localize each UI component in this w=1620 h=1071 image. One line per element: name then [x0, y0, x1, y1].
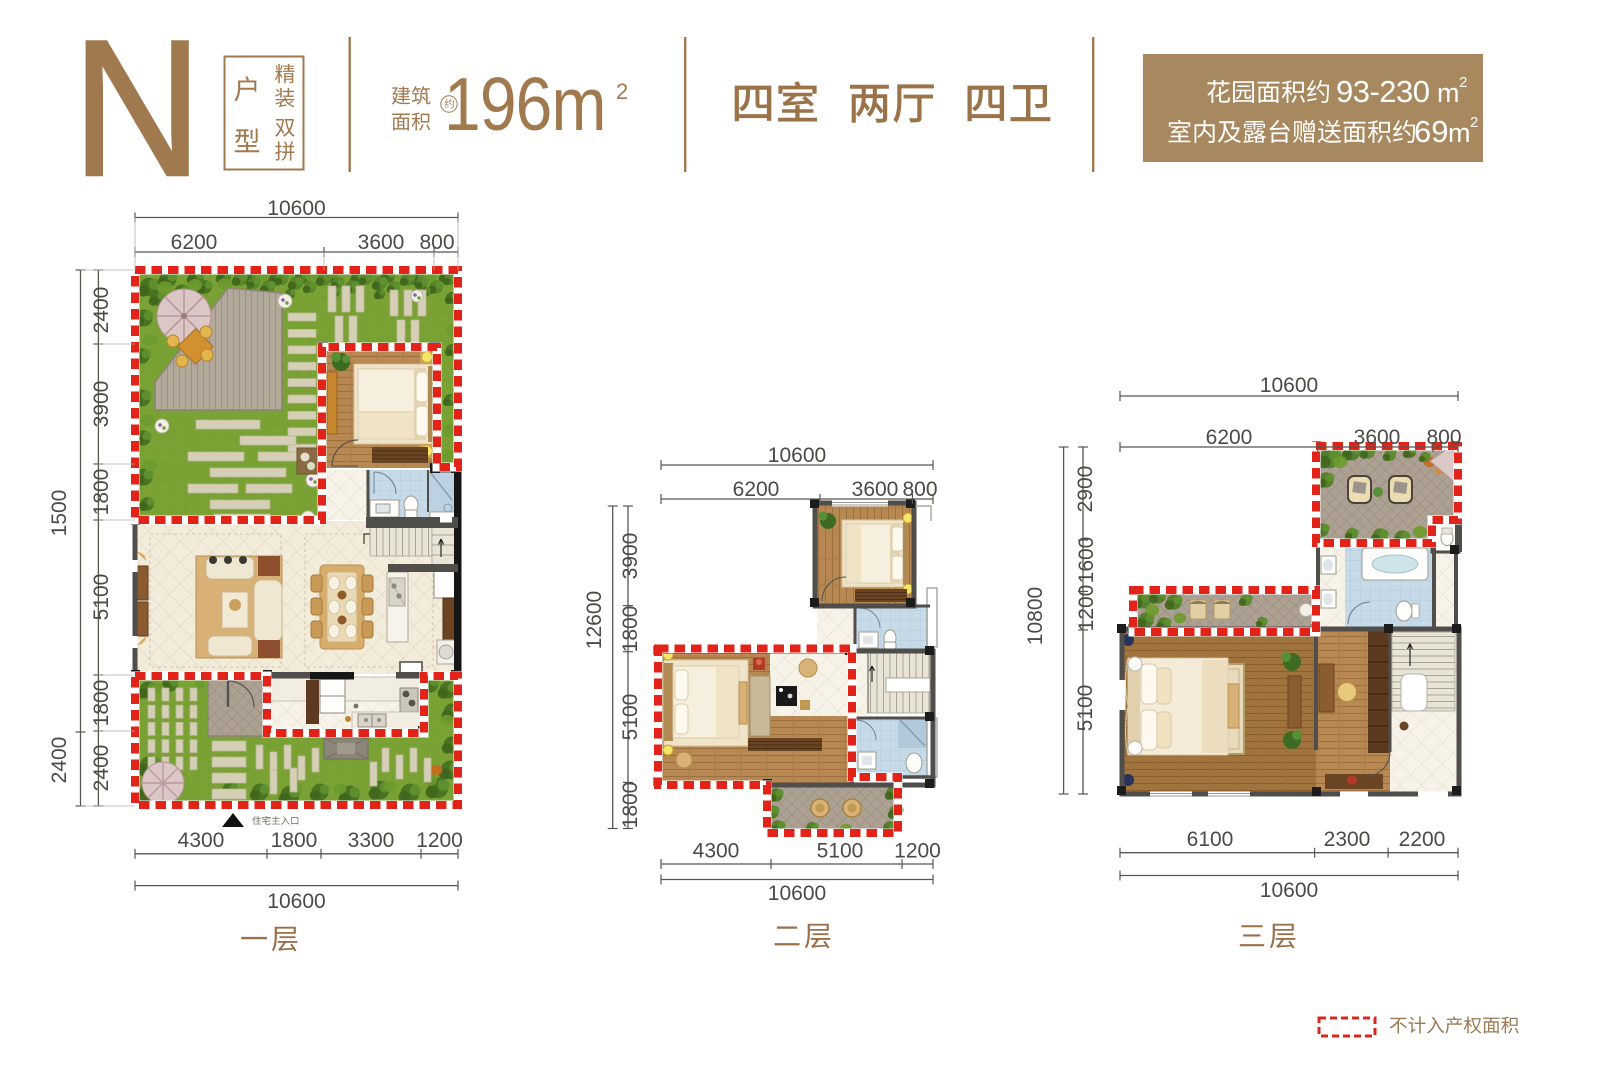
- svg-text:2: 2: [616, 79, 628, 104]
- svg-text:10600: 10600: [768, 444, 826, 467]
- svg-text:2300: 2300: [1324, 828, 1371, 851]
- svg-text:1800: 1800: [90, 469, 113, 516]
- svg-text:5100: 5100: [817, 840, 864, 863]
- svg-text:800: 800: [419, 231, 454, 254]
- svg-text:1500: 1500: [48, 490, 71, 537]
- svg-text:2: 2: [1459, 74, 1467, 91]
- svg-text:5100: 5100: [619, 694, 642, 741]
- svg-text:1800: 1800: [271, 829, 318, 852]
- svg-text:1200: 1200: [894, 840, 941, 863]
- svg-text:N: N: [72, 0, 202, 216]
- svg-text:5100: 5100: [90, 574, 113, 621]
- svg-text:12600: 12600: [583, 591, 606, 649]
- svg-text:2400: 2400: [90, 287, 113, 334]
- svg-text:3900: 3900: [90, 381, 113, 428]
- svg-text:5100: 5100: [1074, 685, 1097, 732]
- svg-text:10600: 10600: [768, 882, 826, 905]
- svg-text:3600: 3600: [852, 478, 899, 501]
- svg-text:69: 69: [1414, 114, 1448, 149]
- svg-text:2900: 2900: [1074, 466, 1097, 513]
- svg-text:3600: 3600: [1354, 426, 1401, 449]
- svg-text:2400: 2400: [90, 745, 113, 792]
- svg-text:10600: 10600: [267, 197, 325, 220]
- svg-text:1800: 1800: [90, 680, 113, 727]
- svg-text:m: m: [1448, 118, 1471, 148]
- svg-text:4300: 4300: [693, 840, 740, 863]
- svg-text:6200: 6200: [1206, 426, 1253, 449]
- svg-text:6200: 6200: [733, 478, 780, 501]
- svg-text:2400: 2400: [48, 737, 71, 784]
- svg-text:800: 800: [902, 478, 937, 501]
- svg-text:10600: 10600: [1260, 879, 1318, 902]
- svg-text:2200: 2200: [1399, 828, 1446, 851]
- svg-text:3900: 3900: [619, 533, 642, 580]
- svg-text:1800: 1800: [619, 606, 642, 653]
- svg-text:10800: 10800: [1024, 587, 1047, 645]
- svg-text:4300: 4300: [178, 829, 225, 852]
- svg-text:1600: 1600: [1075, 537, 1098, 584]
- svg-text:1200: 1200: [1075, 585, 1098, 632]
- svg-text:93-230: 93-230: [1336, 74, 1430, 109]
- svg-text:6100: 6100: [1187, 828, 1234, 851]
- svg-text:1200: 1200: [416, 829, 463, 852]
- svg-text:6200: 6200: [171, 231, 218, 254]
- svg-text:3300: 3300: [348, 829, 395, 852]
- svg-text:10600: 10600: [1260, 374, 1318, 397]
- svg-text:3600: 3600: [358, 231, 405, 254]
- svg-text:1800: 1800: [619, 782, 642, 829]
- svg-text:2: 2: [1470, 114, 1478, 131]
- svg-text:800: 800: [1426, 426, 1461, 449]
- svg-text:10600: 10600: [267, 890, 325, 913]
- svg-text:196m: 196m: [444, 62, 606, 146]
- svg-text:m: m: [1437, 78, 1460, 108]
